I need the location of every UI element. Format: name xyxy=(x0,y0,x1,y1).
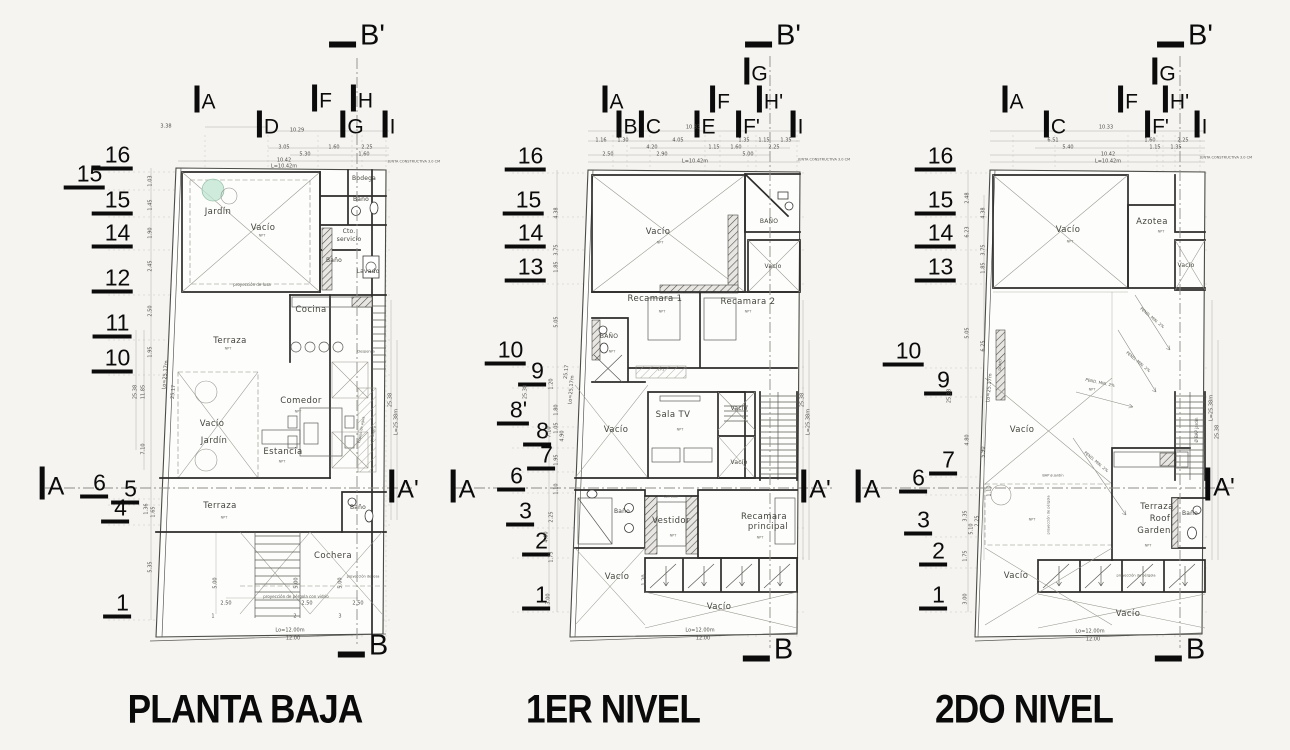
dim-label: 5.35 xyxy=(149,561,154,572)
dim-label: 2.50 xyxy=(352,602,363,607)
tiny-label: proyección de pérgola con vidrio xyxy=(263,595,328,599)
grid-number: 15 xyxy=(915,189,956,216)
grid-letter-I: I xyxy=(791,111,804,138)
npt-label: NPT xyxy=(659,310,666,314)
grid-number: 7 xyxy=(527,444,555,471)
tiny-label: proyección de pérgola xyxy=(1117,574,1156,578)
room-label-vacio: Vacío xyxy=(1178,263,1195,269)
dim-label: 2.90 xyxy=(656,153,667,158)
tiny-label: cl-1 xyxy=(658,368,664,372)
dim-label: 3.35 xyxy=(964,510,969,521)
grid-letter-I: I xyxy=(383,111,396,138)
grid-number: 3 xyxy=(506,500,534,527)
room-label-corredor: Corredor xyxy=(663,495,678,499)
room-label-cto-servicio: Cto. xyxy=(343,229,356,235)
dim-label: 1.65 xyxy=(152,506,157,517)
dim-label: 1.20 xyxy=(550,378,555,389)
grid-number: 13 xyxy=(505,256,546,283)
dim-label: 3.00 xyxy=(547,593,552,604)
room-label-vacio: Vacío xyxy=(1056,226,1081,235)
dim-label: Lo=12.00m xyxy=(1075,630,1104,635)
grid-letter-F: F xyxy=(312,85,332,112)
dim-label: 12.00 xyxy=(696,637,710,642)
dim-label: 25.38 xyxy=(389,393,394,407)
npt-label: NPT xyxy=(295,410,302,414)
grid-letter-A: A xyxy=(1002,86,1023,113)
room-label-vacio: Vacío xyxy=(731,460,748,466)
dim-label: 5.05 xyxy=(555,316,560,327)
grid-number: 11 xyxy=(93,312,132,339)
room-label-vacio: Vacío xyxy=(251,224,276,233)
room-label-vacio: Vacío xyxy=(1010,426,1035,435)
dim-label: 7.10 xyxy=(142,443,147,454)
grid-number: 7 xyxy=(929,449,957,476)
npt-label: NPT xyxy=(670,534,677,538)
dim-label: 2.50 xyxy=(602,153,613,158)
section-marker-b: B xyxy=(1155,636,1205,665)
room-label-bano: Baño xyxy=(350,505,366,511)
dim-label: 1.95 xyxy=(555,454,560,465)
dim-label: 1.75 xyxy=(964,550,969,561)
room-label-vacio: Vacío xyxy=(1004,572,1029,581)
grid-letter-H: H xyxy=(351,85,373,112)
dim-label: L=10.42m xyxy=(682,160,708,165)
room-label-bano: Baño xyxy=(353,197,369,203)
dim-label: Lo=12.00m xyxy=(275,629,304,634)
section-marker-a-prime: A' xyxy=(801,470,830,503)
npt-label: NPT xyxy=(225,347,232,351)
dim-label: 1.35 xyxy=(1170,146,1181,151)
room-label-bano: Baño xyxy=(614,509,630,515)
dim-label: 3.00 xyxy=(964,593,969,604)
dim-label: 1.95 xyxy=(149,346,154,357)
grid-letter-G: G xyxy=(744,58,767,85)
grid-number: 16 xyxy=(915,145,956,172)
dim-label: 4.00 xyxy=(545,531,550,542)
dim-label: 10.29 xyxy=(290,129,304,134)
grid-number: 12 xyxy=(92,267,133,294)
room-label-comedor: Comedor xyxy=(280,397,322,406)
dim-label: 4.38 xyxy=(555,207,560,218)
dim-label: 5.90 xyxy=(982,446,987,457)
grid-letter-A: A xyxy=(602,86,623,113)
dim-label: 25.38 xyxy=(801,393,806,407)
npt-label: NPT xyxy=(221,516,228,520)
grid-number: 13 xyxy=(915,256,956,283)
dim-label: 2.25 xyxy=(361,146,372,151)
dim-label: 5.00 xyxy=(214,577,219,588)
dim-label: 12.00 xyxy=(286,637,300,642)
grid-letter-H-prime: H' xyxy=(1163,86,1189,113)
tiny-label: proyección de losa xyxy=(233,283,271,287)
dim-label: 1.03 xyxy=(149,175,154,186)
dim-label: 5.10 xyxy=(970,523,975,534)
parking-stall-3: 3 xyxy=(338,615,341,620)
dim-label: 3.38 xyxy=(160,125,171,130)
section-marker-a-prime: A' xyxy=(389,470,418,503)
section-marker-b-prime: B' xyxy=(329,22,385,51)
dim-label: 1.45 xyxy=(149,199,154,210)
grid-letter-G: G xyxy=(1152,58,1175,85)
grid-number: 14 xyxy=(92,222,133,249)
section-marker-b-prime: B' xyxy=(745,22,801,51)
dim-label: 4.90 xyxy=(561,430,566,441)
room-label-estancia: Estancia xyxy=(263,448,302,457)
npt-label: NPT xyxy=(1089,388,1096,392)
grid-letter-B: B xyxy=(616,111,637,138)
section-marker-a: A xyxy=(856,470,881,503)
grid-number: 1 xyxy=(103,592,131,619)
room-label-vacio: Vacío xyxy=(604,426,629,435)
room-label-vestidor: Vestidor xyxy=(652,517,690,526)
room-label-bano: BAÑO xyxy=(600,334,618,340)
room-label-vacio: Vacío xyxy=(605,573,630,582)
room-label-recamara-principal: principal xyxy=(748,523,788,532)
dim-label: L=25.38m xyxy=(1210,395,1215,421)
dim-label: 2.50 xyxy=(220,602,231,607)
dim-label: 1.10 xyxy=(988,485,993,496)
dim-label: L=25.38m xyxy=(395,409,400,435)
dim-label: 2.45 xyxy=(149,260,154,271)
dim-label: 1.15 xyxy=(708,146,719,151)
room-label-terraza-roof-garden: Garden xyxy=(1137,527,1171,536)
grid-number: 15 xyxy=(92,189,133,216)
dim-label: Lo=12.00m xyxy=(685,629,714,634)
dim-label: 2.48 xyxy=(966,192,971,203)
parking-stall-2: 2 xyxy=(293,615,296,620)
room-label-vacio: Vacío xyxy=(200,420,225,429)
dim-label: 1.75 xyxy=(550,551,555,562)
grid-letter-A: A xyxy=(194,86,215,113)
room-label-cochera: Cochera xyxy=(314,552,352,561)
room-label-jardin: Jardín xyxy=(201,437,228,446)
room-label-vacio: Vacío xyxy=(731,406,748,412)
npt-label: NPT xyxy=(745,310,752,314)
dim-label: 10.33 xyxy=(686,126,700,131)
section-marker-b: B xyxy=(743,636,793,665)
grid-number: 16 xyxy=(505,145,546,172)
room-label-cocina: Cocina xyxy=(295,306,326,315)
dim-label: 1.15 xyxy=(1149,146,1160,151)
dim-label: 1.60 xyxy=(328,146,339,151)
room-label-despensa: Despensa xyxy=(357,350,374,354)
plan-title-planta-baja: PLANTA BAJA xyxy=(128,688,363,733)
tiny-label: proyección de losa xyxy=(347,575,380,579)
dim-label: 2.25 xyxy=(550,511,555,522)
parking-stall-1: 1 xyxy=(211,615,214,620)
npt-label: NPT xyxy=(1145,544,1152,548)
room-label-azotea: Azotea xyxy=(1136,218,1168,227)
dim-label: 1.80 xyxy=(555,404,560,415)
dim-label: 1.60 xyxy=(358,153,369,158)
dim-label: 1.20 xyxy=(643,574,648,585)
dim-label: 5.00 xyxy=(295,577,300,588)
dim-label: 1.35 xyxy=(780,139,791,144)
room-label-recamara-principal: Recamara xyxy=(741,513,787,522)
grid-number: 10 xyxy=(883,340,924,367)
tiny-label: proyección de pérgola xyxy=(1047,496,1051,535)
grid-number: 10 xyxy=(92,347,133,374)
dim-label: 12.00 xyxy=(1086,638,1100,643)
dim-label: 4.05 xyxy=(672,139,683,144)
dim-label: 6.51 xyxy=(1047,139,1058,144)
dim-label: 10.33 xyxy=(1099,126,1113,131)
room-label-terraza: Terraza xyxy=(213,337,247,346)
dim-label: L=10.42m xyxy=(271,165,297,170)
room-label-cto-servicio: servicio xyxy=(337,237,362,243)
dim-label: 1.90 xyxy=(149,227,154,238)
dim-label: 11.85 xyxy=(142,385,147,399)
npt-label: NPT xyxy=(279,460,286,464)
note-junta-constructiva: JUNTA CONSTRUCTIVA 3.0 CM xyxy=(1200,156,1252,160)
dim-label: 3.05 xyxy=(278,146,289,151)
grid-letter-F: F xyxy=(1118,86,1138,113)
section-marker-b: B xyxy=(338,632,388,661)
dim-label: 2.25 xyxy=(768,146,779,151)
grid-letter-F: F xyxy=(710,86,730,113)
room-label-bano: Baño xyxy=(326,258,342,264)
npt-label: NPT xyxy=(657,241,664,245)
grid-number: 14 xyxy=(505,222,546,249)
plan-title-2do-nivel: 2DO NIVEL xyxy=(935,688,1113,733)
room-label-sala-tv: Sala TV xyxy=(656,411,691,420)
domo-note: DOMO xyxy=(999,359,1003,370)
dim-label: 1.35 xyxy=(738,139,749,144)
tiny-label: Ø BAP jardín xyxy=(1195,418,1199,443)
npt-label: NPT xyxy=(1067,240,1074,244)
dim-label: 5.00 xyxy=(339,577,344,588)
dim-label: 25.38 xyxy=(948,389,953,403)
grid-number: 14 xyxy=(915,222,956,249)
section-marker-a-prime: A' xyxy=(1205,468,1234,501)
grid-number: 6 xyxy=(899,467,927,494)
dim-label: 25.38 xyxy=(524,385,529,399)
dim-label: 1.60 xyxy=(730,146,741,151)
section-marker-a: A xyxy=(451,470,476,503)
dim-label: L=10.42m xyxy=(1095,160,1121,165)
grid-number: 2 xyxy=(919,540,947,567)
dim-label: 2.50 xyxy=(301,602,312,607)
dim-label: L=25.38m xyxy=(807,409,812,435)
npt-label: NPT xyxy=(1029,518,1036,522)
dim-label: 2.25 xyxy=(1177,139,1188,144)
grid-number: 4 xyxy=(101,497,129,524)
dim-label: 1.30 xyxy=(617,139,628,144)
room-label-bodega: Bodega xyxy=(352,176,376,182)
grid-letter-F-prime: F' xyxy=(736,111,760,138)
dim-label: 6.23 xyxy=(966,226,971,237)
dim-label: 1.85 xyxy=(555,261,560,272)
dim-label: 25.38 xyxy=(134,385,139,399)
grid-letter-H-prime: H' xyxy=(757,86,783,113)
tiny-label: BAP ø jardín xyxy=(1042,474,1063,478)
dim-label: 3.75 xyxy=(982,244,987,255)
grid-number: 3 xyxy=(904,509,932,536)
npt-label: NPT xyxy=(1158,230,1165,234)
npt-label: NPT xyxy=(677,428,684,432)
section-marker-a: A xyxy=(40,467,65,500)
room-label-vacio: Vacío xyxy=(646,228,671,237)
note-junta-constructiva: JUNTA CONSTRUCTIVA 3.0 CM xyxy=(798,158,850,162)
grid-number: 15 xyxy=(503,189,544,216)
note-junta-constructiva: JUNTA CONSTRUCTIVA 3.0 CM xyxy=(388,160,440,164)
npt-label: NPT xyxy=(757,536,764,540)
grid-number: 6 xyxy=(80,472,108,499)
room-label-vacio: Vacío xyxy=(1116,610,1141,619)
dim-label: 1.36 xyxy=(145,503,150,514)
dim-label: 4.38 xyxy=(982,207,987,218)
grid-letter-D: D xyxy=(257,111,279,138)
grid-letter-F-prime: F' xyxy=(1145,111,1169,138)
plan-title-1er-nivel: 1ER NIVEL xyxy=(526,688,700,733)
dim-label: 5.05 xyxy=(966,327,971,338)
dim-label: 25.38 xyxy=(1216,425,1221,439)
section-marker-b-prime: B' xyxy=(1157,22,1213,51)
room-label-recamara-1: Recamara 1 xyxy=(628,295,683,304)
room-label-terraza: Terraza xyxy=(203,502,237,511)
dim-label: 1.60 xyxy=(1144,139,1155,144)
room-label-vacio: Vacío xyxy=(707,603,732,612)
room-label-vacio: Vacío xyxy=(765,264,782,270)
grid-letter-I: I xyxy=(1195,111,1208,138)
dim-label: 2.50 xyxy=(149,305,154,316)
room-label-terraza-roof-garden: Terraza xyxy=(1140,503,1174,512)
dim-label: 10.42 xyxy=(1101,153,1115,158)
dim-label: 1.85 xyxy=(982,262,987,273)
room-label-terraza-roof-garden: Roof xyxy=(1150,515,1171,524)
dim-label: 7.10 xyxy=(548,426,553,437)
grid-number: 1 xyxy=(919,584,947,611)
grid-number: 9 xyxy=(518,360,546,387)
grid-number: 15 xyxy=(64,163,105,190)
floor-plan-sheet: ADFGHIB'BAA'1615151412111065413.3810.293… xyxy=(0,0,1290,750)
dim-label: 3.75 xyxy=(555,244,560,255)
dim-label: 5.30 xyxy=(299,153,310,158)
grid-number: 6 xyxy=(497,465,525,492)
dim-label: 6.25 xyxy=(982,340,987,351)
room-label-bano: BAÑO xyxy=(760,219,778,225)
dim-label: 4.20 xyxy=(646,146,657,151)
room-label-bano: Baño xyxy=(1182,511,1198,517)
dim-label: 1.16 xyxy=(595,139,606,144)
grid-letter-G: G xyxy=(340,111,363,138)
dim-label: 1.10 xyxy=(555,483,560,494)
grid-letter-C: C xyxy=(1044,111,1066,138)
dim-label: 4.80 xyxy=(966,434,971,445)
dim-label: 5.00 xyxy=(742,153,753,158)
npt-label: NPT xyxy=(259,234,266,238)
dim-label: 5.40 xyxy=(1062,146,1073,151)
dim-label: 1.15 xyxy=(758,139,769,144)
npt-label: NPT xyxy=(609,350,616,354)
room-label-recamara-2: Recamara 2 xyxy=(721,298,776,307)
room-label-jardin: Jardín xyxy=(205,208,232,217)
grid-letter-C: C xyxy=(639,111,661,138)
room-label-lavado: Lavado xyxy=(357,269,380,275)
dim-label: 2.25 xyxy=(976,515,981,526)
